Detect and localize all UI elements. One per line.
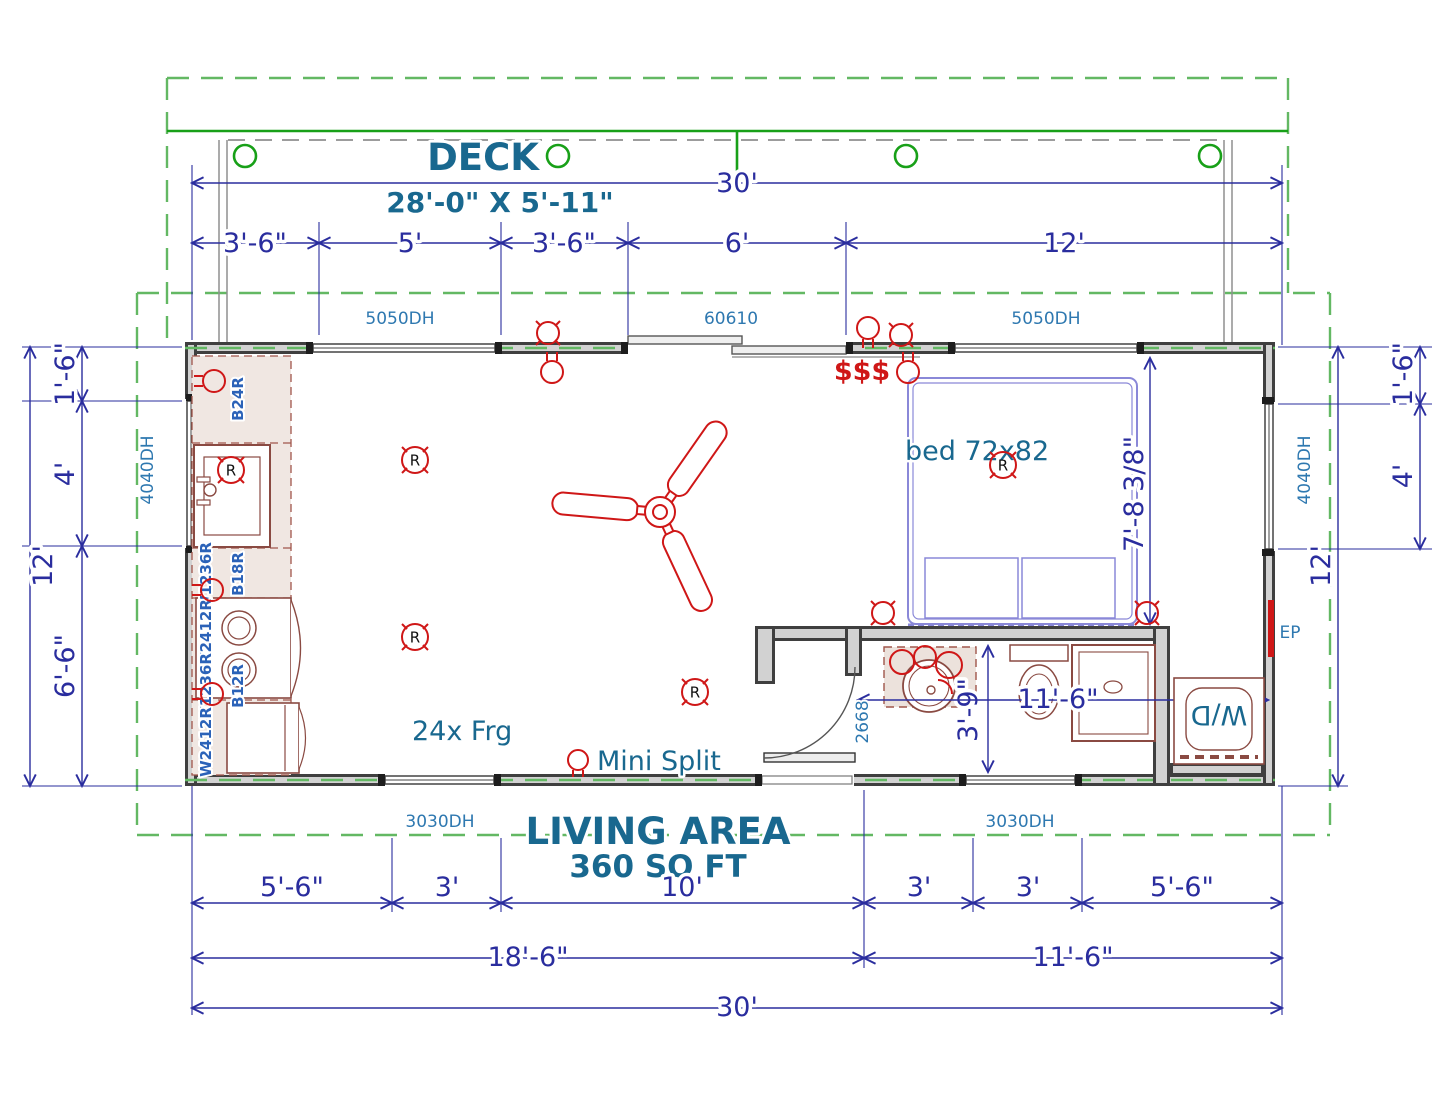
cabinet-label-b24r: B24R (229, 377, 247, 421)
window-label-3030dh: 3030DH (985, 812, 1054, 832)
electrical-panel-label: EP (1280, 623, 1301, 643)
window-label-4040dh: 4040DH (1295, 435, 1315, 504)
deck-size-label: 28'-0" X 5'-11" (386, 186, 614, 219)
dim-top-seg: 3'-6" (532, 228, 596, 259)
svg-text:R: R (226, 462, 236, 480)
mini-split-label: Mini Split (597, 746, 721, 777)
svg-text:11'-6": 11'-6" (1032, 942, 1113, 973)
deck-post (1199, 145, 1221, 167)
svg-text:3'-9": 3'-9" (953, 678, 984, 742)
window-5050-right (948, 341, 1144, 355)
svg-text:4': 4' (1388, 464, 1419, 489)
svg-text:3': 3' (1016, 872, 1041, 903)
light-fixture-symbol (1135, 601, 1159, 625)
cabinet-label-b12r: B12R (229, 664, 247, 708)
living-area-title: LIVING AREA (526, 810, 791, 853)
svg-text:12': 12' (28, 545, 59, 587)
kitchen-sink (194, 445, 270, 547)
floor-plan-drawing: DECK 30' 28'-0" X 5'-11" 3'-6" 5' 3'-6" … (0, 0, 1445, 1097)
ceiling-fan (551, 417, 731, 614)
wd-label: W/D (1191, 699, 1248, 730)
window-3030-right (959, 773, 1082, 787)
deck-post (547, 145, 569, 167)
svg-text:5'-6": 5'-6" (1150, 872, 1214, 903)
outlet-symbol (541, 352, 563, 383)
dim-top-seg: 6' (725, 228, 750, 259)
svg-text:3': 3' (435, 872, 460, 903)
switches-label: $$$ (834, 356, 890, 387)
svg-text:5'-6": 5'-6" (260, 872, 324, 903)
window-label-5050dh: 5050DH (1011, 309, 1080, 329)
receptacle-symbol: R (402, 447, 428, 473)
svg-text:30': 30' (716, 992, 758, 1023)
svg-text:12': 12' (1306, 545, 1337, 587)
deck-post (895, 145, 917, 167)
svg-text:10': 10' (661, 872, 703, 903)
svg-text:R: R (410, 629, 420, 647)
fridge-label: 24x Frg (412, 716, 512, 747)
svg-text:R: R (998, 457, 1008, 475)
window-label-5050dh: 5050DH (365, 309, 434, 329)
svg-text:1'-6": 1'-6" (50, 342, 81, 406)
svg-text:7'-8 3/8": 7'-8 3/8" (1119, 436, 1150, 552)
svg-text:18'-6": 18'-6" (487, 942, 568, 973)
window-label-4040dh: 4040DH (138, 435, 158, 504)
light-fixture-symbol (871, 601, 895, 625)
svg-text:3': 3' (907, 872, 932, 903)
washer-dryer: W/D (1174, 678, 1264, 764)
dimensions-left: 12' 1'-6" 4' 6'-6" (22, 342, 182, 786)
bed-label: bed 72x82 (905, 436, 1049, 467)
svg-text:11'-6": 11'-6" (1017, 684, 1098, 715)
pillow (925, 558, 1018, 618)
entry-door-opening (755, 773, 854, 787)
electrical-panel-marker (1268, 600, 1274, 657)
door-label-2668: 2668 (853, 700, 873, 743)
deck-post (234, 145, 256, 167)
refrigerator (227, 703, 306, 773)
svg-text:4': 4' (50, 462, 81, 487)
bathroom-door (764, 667, 855, 762)
kitchen: B24R B18R B12R W1236R W2412R W1236R W241… (192, 356, 306, 777)
cabinet-label-w2412r: W2412R (197, 707, 215, 777)
slider-label-60610: 60610 (704, 309, 758, 329)
dim-top-seg: 5' (398, 228, 423, 259)
light-fixture-symbol (536, 321, 560, 345)
svg-text:R: R (690, 684, 700, 702)
receptacle-symbol: R (682, 679, 708, 705)
pillow (1022, 558, 1115, 618)
bed (908, 378, 1137, 628)
receptacle-symbol: R (402, 624, 428, 650)
floor-plan: DECK 30' 28'-0" X 5'-11" 3'-6" 5' 3'-6" … (0, 0, 1445, 1097)
mini-split-symbol (568, 750, 588, 777)
dim-top-seg: 3'-6" (223, 228, 287, 259)
window-5050-left (306, 341, 502, 355)
cabinet-label-b18r: B18R (229, 552, 247, 596)
dim-top-seg: 12' (1043, 228, 1085, 259)
deck-title: DECK (427, 136, 540, 179)
window-3030-left (378, 773, 501, 787)
svg-text:1'-6": 1'-6" (1388, 342, 1419, 406)
window-label-3030dh: 3030DH (405, 812, 474, 832)
dimensions-right: 12' 1'-6" 4' (1278, 342, 1432, 786)
window-4040-right (1262, 397, 1276, 556)
svg-text:R: R (410, 452, 420, 470)
svg-text:6'-6": 6'-6" (50, 634, 81, 698)
dim-deck-overall: 30' (716, 168, 758, 199)
living-area-sqft: 360 SQ FT (569, 849, 746, 885)
